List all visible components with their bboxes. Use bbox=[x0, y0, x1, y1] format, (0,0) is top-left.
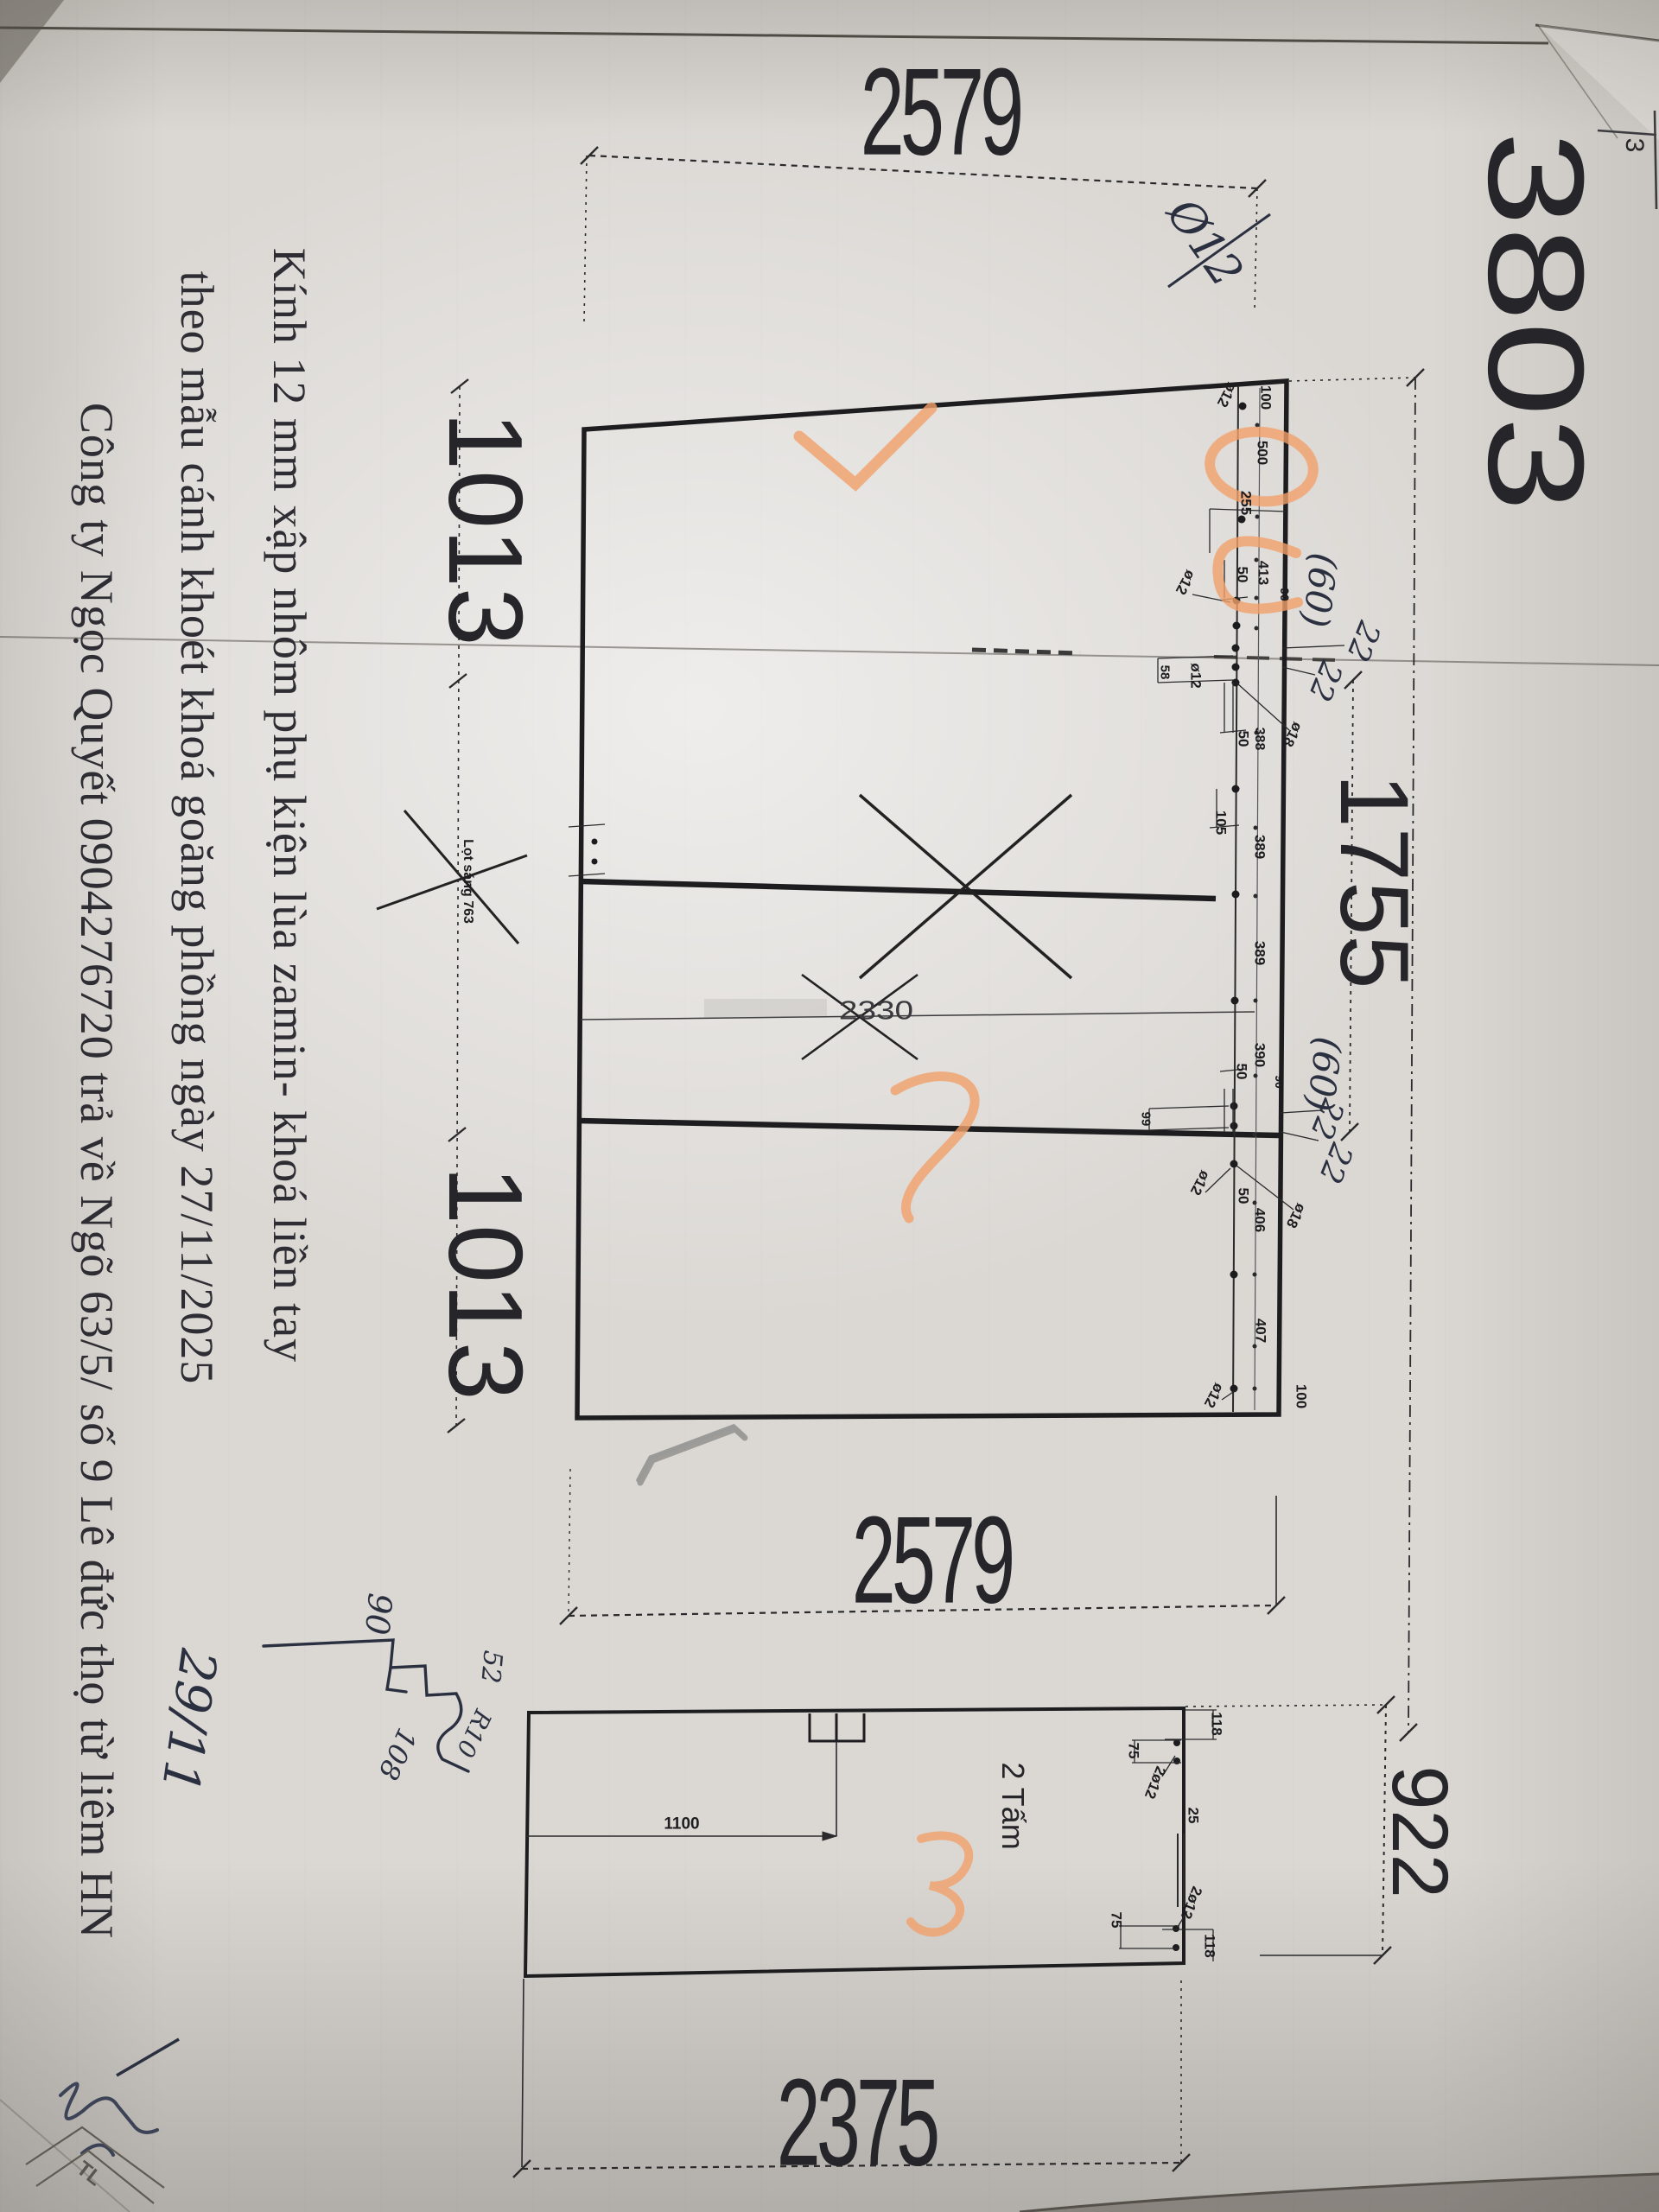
dim-2330-crossed: 2330 bbox=[839, 997, 913, 1024]
handwritten-22-d: 22 bbox=[1313, 1139, 1357, 1187]
chain-50-a: 50 bbox=[1236, 567, 1250, 583]
dim-side-bottom-1013: 1013 bbox=[433, 1166, 538, 1400]
chain-105: 105 bbox=[1214, 810, 1229, 835]
dimension-label-layer: 2579380310131755101325799222375110023302… bbox=[0, 0, 1659, 2212]
dim-922: 922 bbox=[1380, 1765, 1459, 1898]
chain-o12-e: ø12 bbox=[1202, 1381, 1227, 1410]
chain-90-a: 90 bbox=[1279, 588, 1291, 601]
dim-2375: 2375 bbox=[777, 2061, 937, 2184]
label-2-tam: 2 Tấm bbox=[997, 1762, 1028, 1849]
chain-o18-b: ø18 bbox=[1284, 1201, 1309, 1230]
panel2-2o12-bottom: 2ø12 bbox=[1179, 1885, 1205, 1921]
chain-o18-a: ø18 bbox=[1281, 720, 1306, 749]
chain-388: 388 bbox=[1252, 728, 1266, 751]
chain-99: 99 bbox=[1140, 1112, 1153, 1127]
chain-407: 407 bbox=[1254, 1319, 1268, 1343]
dim-1100: 1100 bbox=[664, 1816, 699, 1833]
handwritten-dia12: Ø12 bbox=[1159, 192, 1249, 295]
sketch-108: 108 bbox=[374, 1725, 422, 1784]
panel2-118-bottom: 118 bbox=[1203, 1934, 1217, 1957]
dim-top-2579: 2579 bbox=[861, 50, 1020, 174]
sketch-r10: R10 bbox=[452, 1706, 494, 1760]
panel2-2o12-top: 2ø12 bbox=[1142, 1764, 1168, 1801]
dim-overall-3803: 3803 bbox=[1468, 131, 1605, 512]
chain-100-top: 100 bbox=[1259, 385, 1274, 410]
chain-o12-d: ø12 bbox=[1188, 1168, 1213, 1198]
panel2-118-top: 118 bbox=[1210, 1712, 1224, 1735]
chain-255: 255 bbox=[1239, 491, 1254, 515]
panel2-75-top: 75 bbox=[1127, 1743, 1141, 1759]
dim-middle-1755: 1755 bbox=[1325, 773, 1422, 988]
label-lot-sang-763: Lọt sáng 763 bbox=[461, 839, 474, 924]
handwritten-60-top: (60) bbox=[1297, 551, 1342, 630]
chain-500: 500 bbox=[1255, 441, 1270, 465]
page-number: 3 bbox=[1621, 138, 1647, 153]
chain-389-a: 389 bbox=[1253, 835, 1268, 859]
dim-side-top-1013: 1013 bbox=[433, 411, 538, 645]
sketch-90: 90 bbox=[360, 1592, 397, 1636]
chain-o12-c: ø12 bbox=[1189, 663, 1204, 688]
chain-100-bottom: 100 bbox=[1294, 1384, 1309, 1408]
chain-390: 390 bbox=[1253, 1043, 1268, 1067]
panel2-25: 25 bbox=[1186, 1808, 1201, 1824]
dim-bottom-2579: 2579 bbox=[852, 1498, 1012, 1622]
chain-90-b: 90 bbox=[1274, 1075, 1286, 1089]
chain-389-b: 389 bbox=[1253, 941, 1268, 965]
chain-50-b: 50 bbox=[1236, 731, 1251, 747]
handwritten-date-29-11: 29/11 bbox=[155, 1646, 225, 1796]
chain-413: 413 bbox=[1256, 561, 1271, 585]
panel2-75-bottom: 75 bbox=[1109, 1912, 1124, 1929]
sketch-52: 52 bbox=[476, 1649, 505, 1685]
chain-50-c: 50 bbox=[1235, 1064, 1249, 1080]
chain-50-d: 50 bbox=[1236, 1188, 1251, 1205]
handwritten-22-b: 22 bbox=[1303, 657, 1347, 705]
chain-406: 406 bbox=[1253, 1208, 1268, 1232]
photographed-drawing-page: Kính 12 mm xập nhôm phụ kiện lùa zamin- … bbox=[0, 0, 1659, 2212]
stamp-tl: TL bbox=[73, 2158, 105, 2190]
chain-o12-b: ø12 bbox=[1173, 568, 1198, 597]
handwritten-22-a: 22 bbox=[1341, 617, 1385, 665]
chain-58: 58 bbox=[1159, 665, 1172, 680]
chain-o12-top: ø12 bbox=[1215, 380, 1240, 410]
